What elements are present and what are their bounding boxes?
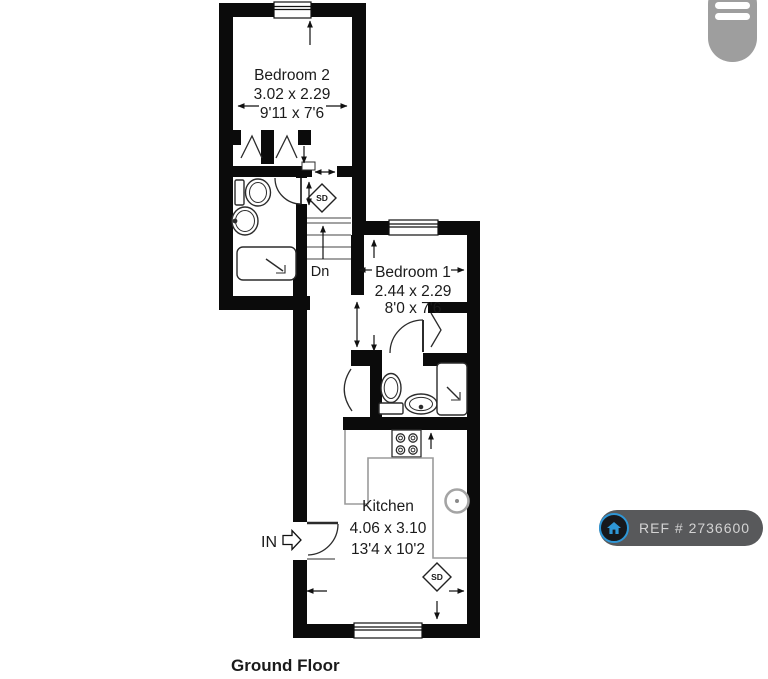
smoke-detector-label: SD [316,193,328,203]
toilet-icon-bathroom1 [235,179,271,206]
shower-icon [437,363,467,415]
window-bedroom2 [274,2,311,18]
floorplan-viewer: SD SD [0,0,768,679]
room-dim-imperial-bedroom1: 8'0 x 7'6 [385,300,442,317]
stove-icon [392,430,421,457]
entrance-label: IN [261,534,277,551]
room-dim-imperial-bedroom2: 9'11 x 7'6 [260,105,324,122]
bathtub-icon [237,247,296,280]
entrance-door [307,523,338,559]
stairs [307,218,351,259]
bathroom-door [275,178,301,204]
floor-title: Ground Floor [231,656,340,675]
smoke-detector-icon-hall: SD [308,184,336,212]
reference-badge: REF # 2736600 [599,510,763,546]
room-label-bedroom1: Bedroom 1 [375,264,451,281]
doors [241,136,441,559]
room-dim-imperial-kitchen: 13'4 x 10'2 [351,541,425,558]
bedroom1-door [390,320,423,353]
hall-door-threshold [302,162,315,170]
menu-button[interactable] [708,0,757,62]
ensuite-door [344,369,352,411]
reference-number: REF # 2736600 [639,520,750,536]
window-bedroom1 [389,220,438,235]
smoke-detector-label: SD [431,572,443,582]
room-dim-metric-kitchen: 4.06 x 3.10 [350,520,427,537]
room-label-kitchen: Kitchen [362,498,414,515]
toilet-icon-bathroom2 [379,374,403,415]
room-dim-metric-bedroom1: 2.44 x 2.29 [375,283,452,300]
entrance-mark: IN [261,531,301,552]
room-dim-metric-bedroom2: 3.02 x 2.29 [254,86,331,103]
fixtures [232,179,469,558]
closet-door-bedroom1 [431,313,441,347]
floorplan-canvas: SD SD [0,0,768,679]
sink-icon-bathroom1 [232,207,258,235]
sink-icon-bathroom2 [405,394,437,414]
kitchen-sink-icon [446,490,469,513]
window-kitchen [354,623,422,638]
house-icon [599,513,629,543]
smoke-detector-icon-kitchen: SD [423,563,451,591]
stairs-down-label: Dn [311,264,330,280]
entrance-arrow-icon [283,531,301,550]
room-label-bedroom2: Bedroom 2 [254,67,330,84]
